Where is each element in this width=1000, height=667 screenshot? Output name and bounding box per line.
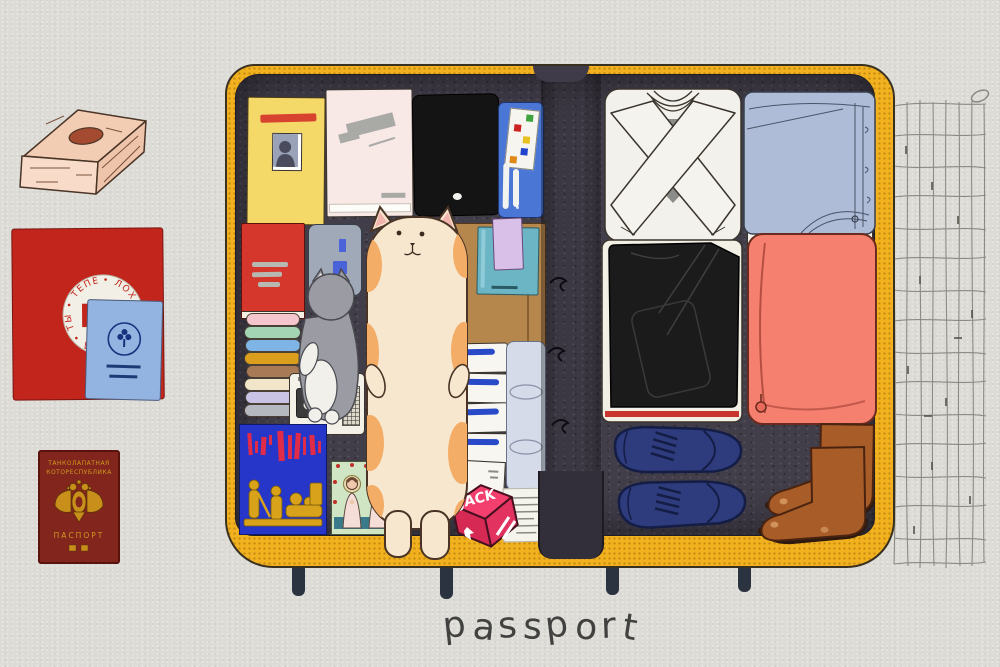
sticker-panel (504, 108, 540, 171)
net-loop (970, 88, 991, 105)
caption: passport (436, 596, 696, 658)
lavender-notebook (492, 217, 524, 270)
cover-line (252, 262, 288, 267)
passport-country-line2: КОТОРЕСПУБЛИКА (46, 469, 112, 476)
illustration-canvas: • ЛОХ • ХАХА • АХА • ТЫ • ТЕПЕРЬ РВ ТАНК… (0, 0, 1000, 667)
red-trim-line (605, 411, 739, 417)
blue-folded-shirt (743, 91, 877, 237)
laptop-logo-dot (453, 193, 462, 200)
green-square-sticker (526, 114, 534, 122)
center-divider-flap (538, 471, 604, 559)
luggage-net (884, 86, 998, 578)
suitcase: JACK (225, 64, 895, 568)
black-laptop (412, 93, 502, 217)
double-eagle-emblem (55, 480, 103, 522)
white-strip (503, 163, 510, 209)
gray-cat-plush (291, 267, 367, 437)
blue-button (339, 239, 346, 252)
caption-text: passport (441, 603, 645, 650)
passport-country-line1: ТАНКОЛАПАТНАЯ (47, 460, 109, 467)
black-folded-jacket (601, 239, 743, 427)
navy-sneakers (601, 419, 751, 533)
notebook-mark (492, 286, 518, 289)
passport-label: ПАСПОРТ (54, 531, 105, 540)
notebook-spine (481, 230, 486, 288)
hinge-dip (533, 66, 589, 82)
red-passport: ТАНКОЛАПАТНАЯ КОТОРЕСПУБЛИКА ПАСПОРТ (38, 450, 120, 564)
cube-seam (760, 243, 765, 413)
gold-figures (244, 480, 322, 526)
net-dashes (906, 146, 972, 534)
plastic-bottle (506, 341, 546, 491)
blue-art-book (239, 424, 327, 535)
box-mark (488, 470, 498, 473)
lint-speck (516, 206, 519, 209)
red-stripe (260, 113, 316, 122)
white-strip (513, 169, 519, 207)
yellow-id-card (246, 97, 325, 226)
seam-squiggles (546, 275, 572, 455)
booklet-emblem (86, 300, 163, 400)
blue-pouch (498, 102, 544, 218)
blue-square-sticker (520, 148, 528, 156)
yellow-square-sticker (523, 136, 531, 144)
orange-square-sticker (509, 156, 517, 164)
id-photo (272, 133, 302, 171)
passport-bottom-marks (69, 545, 88, 551)
gray-marks (338, 112, 405, 198)
blue-booklet (85, 299, 164, 401)
red-square-sticker (514, 124, 522, 132)
pink-sketchbook (325, 89, 413, 218)
wooden-box (6, 94, 156, 199)
white-folded-sweater (603, 87, 743, 245)
coral-packing-cube (747, 233, 877, 425)
cover-line (258, 282, 280, 287)
long-cat-plush (359, 201, 475, 563)
brown-boots (753, 417, 877, 551)
suitcase-lining: JACK (235, 74, 875, 536)
red-brush-strokes (247, 431, 321, 461)
cube-seam (757, 401, 865, 410)
zipper-pull (756, 402, 766, 412)
cover-line (252, 272, 282, 278)
